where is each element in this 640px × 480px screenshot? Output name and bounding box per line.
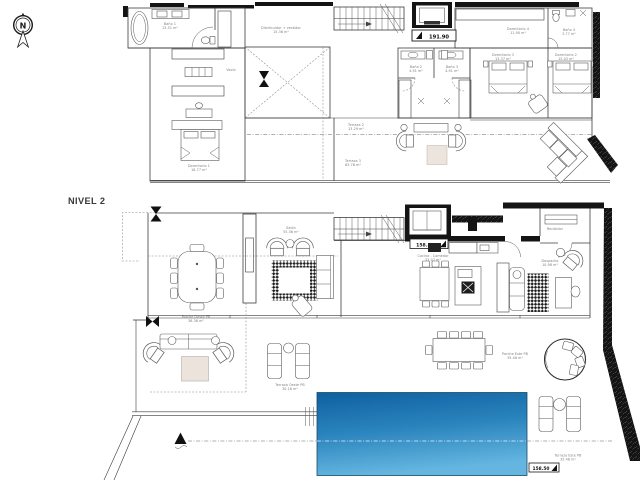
room-label-dormitorio2: Dormitorio 215.03 m² [555,53,577,61]
compass-rose: N [14,13,33,47]
shelving [497,263,509,312]
room-label-bano2: Baño 24.91 m² [409,65,423,73]
wardrobe [172,49,224,59]
bedroom-chaise [525,90,549,114]
room-label-dormitorio1: Dormitorio 118.77 m² [188,164,210,172]
room-label-terraza-oeste: Terraza Oeste PB30.16 m² [274,383,305,391]
closet [459,80,471,118]
main-floor-plan: 158.50 [104,203,640,480]
wardrobe [172,86,224,96]
upper-exterior-walls [123,2,579,17]
desk [186,109,212,118]
boundary-wall [603,208,640,461]
boundary-wall [587,135,618,173]
counter [449,243,477,254]
room-label-distribuidor: Distribuidor + vestidor15.36 m² [261,26,301,34]
side-table [455,124,461,130]
toilet [210,37,215,45]
outdoor-rug [427,146,447,165]
upper-terrace [396,122,587,183]
dark-rug [528,274,549,313]
armchair [449,131,466,151]
level-marker-upper: 191.90 [412,30,456,41]
main-elevator [405,205,451,239]
bathroom-2-3 [399,51,471,119]
floor-plan-drawing: N [0,0,640,480]
side-table [556,248,564,256]
room-label-salon: Salón55.36 m² [283,226,299,234]
desk-chair [196,103,203,109]
door-arc [548,38,558,48]
upper-elevator [412,2,452,28]
boundary-wall [593,12,600,98]
sink [566,10,575,17]
kitchen-table [420,268,449,301]
bedroom-3 [484,61,533,93]
room-label-terraza2: Terraza 213.29 m² [347,123,364,131]
sun-lounger [296,344,310,379]
console-table [414,124,448,133]
room-label-terraza3: Terraza 363.76 m² [344,159,361,167]
room-label-dormitorio4: Dormitorio 411.90 m² [507,27,529,35]
side-table [401,124,407,130]
compass-north-letter: N [20,21,27,30]
salon [171,238,334,317]
desk-chair [571,286,580,297]
study [556,246,588,308]
sectional-sofa [527,122,588,183]
room-label-bano3: Baño 34.91 m² [445,65,459,73]
void-double-height [245,47,330,118]
wardrobe [218,11,231,47]
main-staircase [334,215,404,243]
svg-text:191.90: 191.90 [429,35,449,41]
armchair [267,238,288,256]
side-table [168,337,176,345]
upper-floor-plan: 191.90 [123,2,618,183]
toilet [442,51,448,60]
terrace-west [268,343,310,379]
desk [556,278,572,309]
lounge-chaise [510,268,525,311]
dresser [185,68,212,77]
level-marker-main-bottom: 158.50 [529,463,559,472]
room-label-bano4: Baño 43.77 m² [562,28,576,36]
pool-steps [306,407,314,426]
dressing-area [172,11,231,96]
kitchen [420,243,498,308]
sun-lounger [268,344,282,379]
terrace-east [539,397,581,432]
porch-west [139,334,238,381]
outdoor-dining-table [433,339,485,362]
svg-text:158.50: 158.50 [533,466,550,472]
bedroom-2 [548,61,597,93]
sun-lounger [539,397,553,432]
fireplace [243,214,256,303]
round-daybed [545,339,586,380]
armchair [396,131,413,151]
sofa [317,256,334,299]
upper-staircase [334,4,404,33]
room-label-dormitorio3: Dormitorio 313.37 m² [492,53,514,61]
sun-lounger [567,397,581,432]
level-title: NIVEL 2 [68,196,105,206]
section-marker [259,71,269,87]
closet [399,80,411,118]
shower-marks [580,10,586,16]
dining-table [178,252,216,303]
coffee-table [182,357,209,382]
north-arrow-icon [175,433,187,445]
master-bedroom [172,103,222,161]
armchair [293,238,314,256]
room-label-porche-oeste: Porche Oeste PB36.36 m² [182,315,211,323]
side-table [554,399,566,411]
appliance [428,243,441,252]
side-table [284,343,294,353]
shower-marks [418,98,450,104]
bedroom4-closet [456,9,544,20]
bed-canopy [172,121,222,130]
toilet [553,14,559,22]
entry-door-arc [505,242,521,258]
room-label-terraza-este: Terraza Este PB35.46 m² [554,454,583,462]
room-label-vacio: Vacío [226,68,235,72]
floor-plan-page: N [0,0,640,480]
room-label-despacho: Despacho10.98 m² [541,259,558,267]
swimming-pool [317,393,527,476]
room-label-porche-este: Porche Este PB35.46 m² [502,352,529,360]
toilet [427,51,433,60]
room-label-bano1: Baño 113.51 m² [162,22,178,30]
entry-hall [545,215,577,224]
side-table [286,240,294,248]
room-label-recibidor: Recibidor [547,227,564,231]
